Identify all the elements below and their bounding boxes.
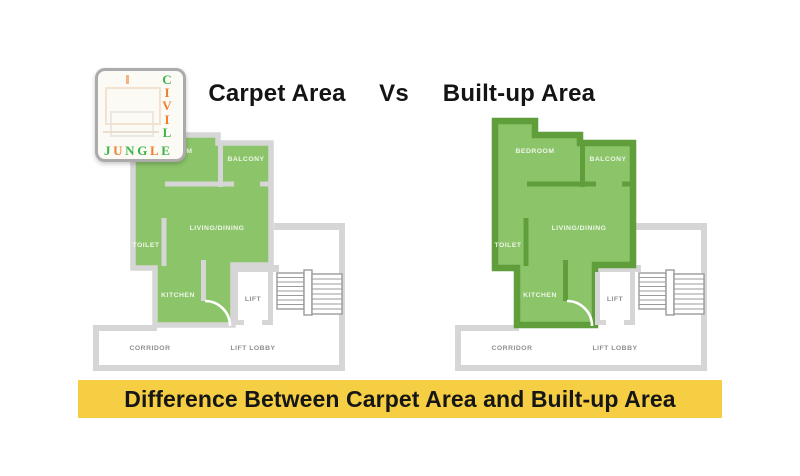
- kitchen-label: KITCHEN: [161, 292, 195, 299]
- corridor-label: CORRIDOR: [491, 345, 532, 352]
- toilet-label: TOILET: [132, 242, 159, 249]
- logo-letter: U: [113, 144, 122, 157]
- lift-door-stub-right: [624, 320, 635, 325]
- stairs-treads-left: [639, 278, 666, 305]
- corridor-bottom-wall: [455, 365, 707, 371]
- stair-alcove-top-wall: [636, 223, 707, 230]
- logo-sketch: [126, 75, 129, 84]
- toilet-label: TOILET: [494, 242, 521, 249]
- logo-letter: V: [162, 99, 171, 112]
- kitchen-wall: [201, 260, 206, 301]
- corridor-top-wall: [455, 325, 519, 331]
- logo-letter: E: [161, 144, 170, 157]
- living-label: LIVING/DINING: [552, 225, 607, 232]
- lift-label: LIFT: [245, 296, 262, 303]
- stairs-treads-left: [277, 278, 304, 305]
- lift-door-stub-right: [262, 320, 273, 325]
- bedroom-bottom-wall: [527, 182, 580, 187]
- logo-civil-text: CIVIL: [160, 73, 174, 139]
- carpet-area-title: Carpet Area: [208, 80, 345, 108]
- lift-label: LIFT: [607, 296, 624, 303]
- logo-sketch: [110, 111, 154, 137]
- logo-letter: N: [125, 144, 134, 157]
- logo-sketch: [103, 131, 159, 133]
- banner-text: Difference Between Carpet Area and Built…: [124, 386, 675, 413]
- kitchen-wall: [563, 260, 568, 301]
- toilet-wall: [162, 218, 167, 266]
- lift-left-wall: [233, 272, 238, 325]
- balcony-stub-left: [223, 182, 234, 187]
- stairs-divider: [304, 270, 312, 315]
- logo-letter: I: [164, 113, 169, 126]
- civil-jungle-logo: CIVIL JUNGLE: [95, 68, 186, 162]
- balcony-stub-right: [622, 182, 633, 187]
- bedroom-balcony-wall: [218, 141, 223, 187]
- lift-lobby-label: LIFT LOBBY: [592, 345, 637, 352]
- balcony-stub-left: [585, 182, 596, 187]
- logo-letter: L: [163, 126, 172, 139]
- bedroom-balcony-wall: [580, 141, 585, 187]
- bedroom-bottom-wall: [165, 182, 218, 187]
- logo-jungle-text: JUNGLE: [104, 144, 170, 157]
- living-label: LIVING/DINING: [190, 225, 245, 232]
- stairs-treads-right: [674, 279, 704, 309]
- lift-door-stub-left: [233, 320, 244, 325]
- stair-alcove-top-wall: [274, 223, 345, 230]
- balcony-label: BALCONY: [589, 156, 626, 163]
- corridor-left-wall: [455, 325, 461, 371]
- logo-letter: L: [150, 144, 159, 157]
- corridor-left-wall: [93, 325, 99, 371]
- balcony-stub-right: [260, 182, 271, 187]
- stairs-divider: [666, 270, 674, 315]
- infographic: Carpet Area Vs Built-up Area CIVIL JUNGL…: [0, 0, 800, 476]
- corridor-label: CORRIDOR: [129, 345, 170, 352]
- corridor-top-wall: [93, 325, 157, 331]
- lift-left-wall: [595, 272, 600, 325]
- balcony-label: BALCONY: [227, 156, 264, 163]
- corridor-bottom-wall: [93, 365, 345, 371]
- lift-right-wall: [630, 272, 635, 325]
- lift-door-stub-left: [595, 320, 606, 325]
- lift-lobby-label: LIFT LOBBY: [230, 345, 275, 352]
- logo-letter: J: [104, 144, 111, 157]
- bottom-banner: Difference Between Carpet Area and Built…: [78, 380, 722, 418]
- kitchen-label: KITCHEN: [523, 292, 557, 299]
- vs-title: Vs: [379, 80, 409, 108]
- logo-letter: G: [137, 144, 147, 157]
- bedroom-label: BEDROOM: [516, 148, 555, 155]
- stairs-treads-right: [312, 279, 342, 309]
- floor-plan-builtup-area: BEDROOM BALCONY LIVING/DINING TOILET KIT…: [455, 113, 707, 371]
- toilet-wall: [524, 218, 529, 266]
- builtup-area-title: Built-up Area: [443, 80, 595, 108]
- lift-right-wall: [268, 272, 273, 325]
